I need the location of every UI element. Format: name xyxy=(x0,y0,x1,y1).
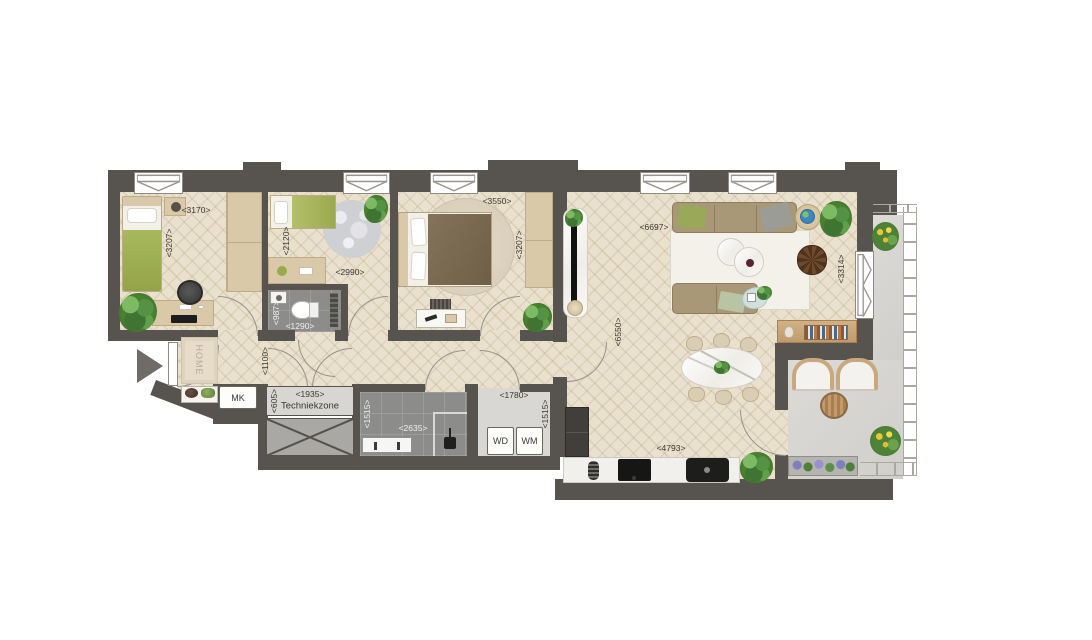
window-sash-icon xyxy=(641,173,689,193)
dining-chair xyxy=(715,390,732,405)
washer-label: WM xyxy=(522,436,538,446)
shaft-box xyxy=(266,418,354,456)
bedroom1-wardrobe xyxy=(226,192,262,292)
bed-blanket xyxy=(123,230,161,291)
window-living-2 xyxy=(728,172,777,194)
globe xyxy=(800,209,815,224)
nightstand-lamp xyxy=(171,202,181,212)
dining-chair xyxy=(742,387,759,402)
bedroom2-bed xyxy=(270,195,336,229)
bedroom1-bed xyxy=(122,196,162,292)
balcony-railing-bottom xyxy=(860,462,917,476)
meter-cupboard-label: MK xyxy=(231,393,245,403)
window-bedroom1 xyxy=(134,172,183,194)
balcony-french-door xyxy=(855,251,874,319)
toilet-tank xyxy=(309,302,319,318)
window-bedroom3 xyxy=(430,172,478,194)
sideboard xyxy=(777,320,857,343)
cabinet-divider xyxy=(566,432,588,433)
wall-dining-balcony-b xyxy=(775,455,788,481)
sofa-seam xyxy=(716,286,717,313)
bedroom1-office-chair xyxy=(177,280,203,305)
window-sash-icon xyxy=(135,173,182,193)
tv-console-speaker xyxy=(567,300,583,316)
shower-glass-horizontal xyxy=(433,412,467,414)
dim-living-depth-right: <3314> xyxy=(836,255,846,284)
floorplan: HOME xyxy=(0,0,1092,640)
dining-chair xyxy=(713,333,730,348)
sideboard-books xyxy=(804,325,848,340)
bed-blanket xyxy=(428,214,491,285)
wall-right-a xyxy=(857,192,873,251)
dining-chair xyxy=(688,387,705,402)
dryer-label: WD xyxy=(493,436,508,446)
bench-book xyxy=(445,314,457,323)
basin-faucet xyxy=(374,442,377,450)
bedroom3-bench xyxy=(416,309,466,328)
balcony-armchair-1 xyxy=(792,358,834,391)
wall-bump-1 xyxy=(243,162,281,171)
bed-headboard xyxy=(399,213,408,286)
window-living-1 xyxy=(640,172,690,194)
dryer-box: WD xyxy=(487,427,514,455)
wall-bump-2 xyxy=(488,160,578,171)
wall-toilet-right xyxy=(341,284,348,341)
door-sash-icon xyxy=(856,252,873,318)
sofa-throw-gray xyxy=(758,201,793,232)
washer-box: WM xyxy=(516,427,543,455)
dim-bedroom1-depth: <3207> xyxy=(164,229,174,258)
desk-keyboard xyxy=(171,315,197,323)
dim-hallway-width: <1100> xyxy=(260,347,270,375)
dim-toilet-width: <1290> xyxy=(286,321,315,331)
shower-arm xyxy=(449,428,451,438)
window-bedroom2 xyxy=(343,172,390,194)
dim-laundry-depth: <1515> xyxy=(540,400,550,429)
window-sash-icon xyxy=(431,173,477,193)
sofa-seam-2 xyxy=(756,205,757,232)
coffee-table-2 xyxy=(734,247,764,277)
wall-hall-seg4 xyxy=(388,330,480,341)
kitchen-canister xyxy=(588,461,599,480)
dresser-item-2 xyxy=(299,267,313,275)
toilet-radiator xyxy=(330,293,338,327)
sofa-top xyxy=(672,202,797,233)
bed-headboard xyxy=(123,197,161,206)
window-sash-icon xyxy=(344,173,389,193)
desk-mouse xyxy=(198,305,204,309)
entry-bench-plant xyxy=(201,388,215,398)
bed-pillow-2 xyxy=(410,252,426,281)
sideboard-vase xyxy=(784,326,794,338)
dim-techniekzone-width: <1935> xyxy=(296,389,325,399)
window-sash-icon xyxy=(729,173,776,193)
balcony-plant-top xyxy=(872,222,899,251)
shower-head xyxy=(444,437,456,449)
dim-living-depth-left: <6550> xyxy=(613,318,623,347)
cooktop-knob xyxy=(632,476,636,480)
bathroom-double-basin xyxy=(362,437,412,453)
bed-pillow xyxy=(127,208,157,223)
doormat-label: HOME xyxy=(194,345,204,376)
kitchen-tall-cabinets xyxy=(565,407,589,457)
basin-faucet-2 xyxy=(397,442,400,450)
wall-dining-balcony-a xyxy=(775,360,788,410)
wardrobe-divider xyxy=(228,242,262,243)
balcony-railing-top xyxy=(873,204,917,213)
kitchen-sink xyxy=(686,458,729,482)
dim-techniekzone-depth: <605> xyxy=(269,389,279,413)
wall-bedroom2-3-divider xyxy=(390,192,398,330)
sink-faucet xyxy=(704,467,710,473)
kitchen-cooktop xyxy=(618,459,651,481)
wardrobe-divider xyxy=(526,240,552,241)
sofa-cushion-green xyxy=(677,204,708,230)
bed-pillow xyxy=(274,201,288,224)
bed-blanket xyxy=(292,196,335,228)
bedroom3-bed xyxy=(398,212,492,287)
tv xyxy=(571,224,577,304)
shower-glass-vertical xyxy=(433,412,435,456)
techniekzone-label: Techniekzone xyxy=(281,401,339,412)
bedroom2-dresser xyxy=(268,257,326,284)
wall-toilet-top xyxy=(268,284,348,290)
dresser-item xyxy=(277,266,287,276)
bedroom3-mat xyxy=(430,299,451,309)
bench-decor xyxy=(425,314,438,322)
dim-bathroom-depth: <1515> xyxy=(362,400,372,429)
dim-kitchen-width: <4793> xyxy=(657,443,686,453)
balcony-railing-right xyxy=(903,207,917,476)
balcony-flower-box xyxy=(788,456,858,476)
photo-frame xyxy=(747,293,756,302)
entrance-arrow-icon xyxy=(137,349,163,383)
wall-service-bottom xyxy=(258,456,560,470)
dim-bedroom3-depth: <3207> xyxy=(514,231,524,260)
dim-bedroom1-width: <3170> xyxy=(182,205,211,215)
rattan-pouf xyxy=(797,245,827,275)
wall-bath-laundry xyxy=(467,384,478,456)
dim-laundry-width: <1780> xyxy=(500,390,529,400)
coffee-table-bowl xyxy=(746,259,754,267)
meter-cupboard-box: MK xyxy=(219,386,257,409)
dim-bedroom3-width: <3550> xyxy=(483,196,512,206)
bedroom3-wardrobe xyxy=(525,192,553,288)
dim-bedroom2-depth: <2120> xyxy=(281,227,291,256)
wall-hall-seg2 xyxy=(258,330,295,341)
balcony-table xyxy=(820,392,848,419)
dim-toilet-depth: <987> xyxy=(271,301,281,325)
dim-bedroom2-width: <2990> xyxy=(336,267,365,277)
dim-living-width: <6697> xyxy=(640,222,669,232)
bedroom1-desk xyxy=(152,300,214,326)
entry-bench-bowl xyxy=(185,388,198,398)
balcony-armchair-2 xyxy=(836,358,878,391)
bed-pillow xyxy=(410,218,427,247)
sofa-seam xyxy=(714,205,715,232)
balcony-plant-bottom xyxy=(870,426,901,456)
dim-bathroom-width: <2635> xyxy=(399,423,428,433)
wall-bath-top xyxy=(360,384,425,392)
